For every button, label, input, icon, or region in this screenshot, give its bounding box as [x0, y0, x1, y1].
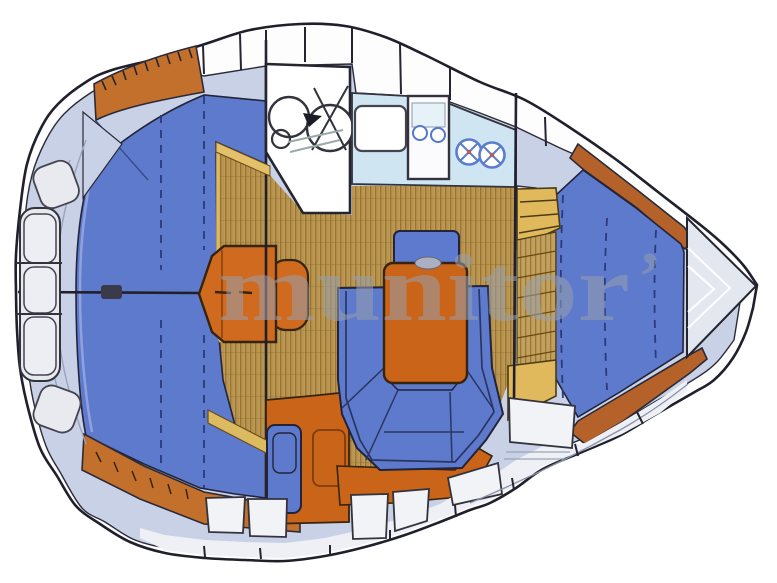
svg-text:’: ’: [638, 239, 661, 316]
svg-text:munitor: munitor: [218, 235, 630, 341]
